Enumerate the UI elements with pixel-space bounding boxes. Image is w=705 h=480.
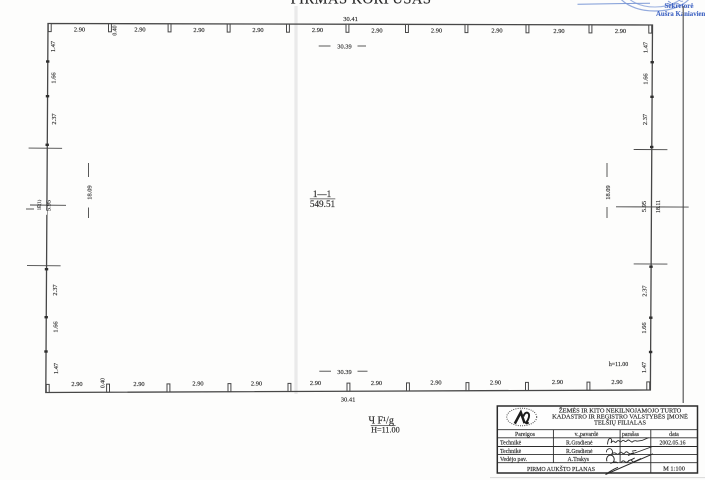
svg-text:2.90: 2.90 xyxy=(430,380,441,387)
svg-text:0.40: 0.40 xyxy=(112,25,118,35)
svg-text:v.,pavardė: v.,pavardė xyxy=(575,432,599,438)
svg-text:1.66: 1.66 xyxy=(641,322,648,333)
svg-text:30.41: 30.41 xyxy=(343,16,358,23)
svg-text:2.90: 2.90 xyxy=(491,28,502,35)
svg-text:1.47: 1.47 xyxy=(641,361,648,373)
svg-text:30.39: 30.39 xyxy=(337,43,351,50)
svg-text:h=11.00: h=11.00 xyxy=(609,362,628,368)
svg-text:1.47: 1.47 xyxy=(50,40,57,52)
svg-text:2.90: 2.90 xyxy=(611,379,622,386)
svg-text:2.90: 2.90 xyxy=(71,381,82,388)
svg-text:2.37: 2.37 xyxy=(641,285,648,297)
svg-text:Technikė: Technikė xyxy=(500,449,522,455)
svg-text:1.47: 1.47 xyxy=(53,362,60,374)
svg-text:1.66: 1.66 xyxy=(50,72,57,83)
svg-text:TELŠIŲ FILIALAS: TELŠIŲ FILIALAS xyxy=(594,418,646,426)
svg-text:2.90: 2.90 xyxy=(192,381,203,388)
svg-text:2.90: 2.90 xyxy=(490,379,501,386)
svg-text:PIRMAS KORPUSAS: PIRMAS KORPUSAS xyxy=(291,0,432,8)
svg-text:30.41: 30.41 xyxy=(341,396,356,403)
svg-text:1Ė(1): 1Ė(1) xyxy=(37,199,42,210)
svg-text:2.37: 2.37 xyxy=(51,113,58,125)
svg-text:30.39: 30.39 xyxy=(337,369,351,376)
svg-text:Vedėjo pav.: Vedėjo pav. xyxy=(500,457,528,463)
svg-text:2.37: 2.37 xyxy=(642,113,649,125)
svg-text:data: data xyxy=(669,432,679,438)
svg-text:18.09: 18.09 xyxy=(605,185,612,199)
svg-text:18.09: 18.09 xyxy=(87,185,94,199)
svg-text:18.11: 18.11 xyxy=(656,200,662,213)
svg-text:A.Trakys: A.Trakys xyxy=(568,457,590,463)
svg-text:2.90: 2.90 xyxy=(552,379,563,386)
svg-text:5.95: 5.95 xyxy=(641,201,648,212)
svg-text:2.90: 2.90 xyxy=(133,381,144,388)
svg-text:0.40: 0.40 xyxy=(100,378,106,388)
svg-text:2.90: 2.90 xyxy=(312,27,323,34)
svg-text:Technikė: Technikė xyxy=(500,441,522,447)
svg-text:Aušra Kaniavienė: Aušra Kaniavienė xyxy=(656,11,705,18)
svg-text:R.Gradienė: R.Gradienė xyxy=(566,449,593,455)
svg-text:H=11.00: H=11.00 xyxy=(371,426,400,435)
svg-text:Sekretorė: Sekretorė xyxy=(664,2,693,10)
svg-text:2.90: 2.90 xyxy=(553,28,564,35)
svg-text:2.90: 2.90 xyxy=(252,27,263,34)
svg-text:2.90: 2.90 xyxy=(74,27,85,34)
svg-text:1.66: 1.66 xyxy=(642,73,649,84)
svg-text:2.90: 2.90 xyxy=(134,27,145,34)
svg-text:1.66: 1.66 xyxy=(52,321,59,332)
svg-text:R.Gradienė: R.Gradienė xyxy=(566,441,593,447)
svg-text:1.47: 1.47 xyxy=(643,41,650,53)
svg-text:2.37: 2.37 xyxy=(52,284,59,296)
svg-text:Pareigos: Pareigos xyxy=(515,432,536,438)
svg-text:2.90: 2.90 xyxy=(251,380,262,387)
svg-text:2.90: 2.90 xyxy=(371,380,382,387)
svg-text:2002.05.16: 2002.05.16 xyxy=(659,440,685,446)
svg-text:2.90: 2.90 xyxy=(310,380,321,387)
svg-text:parašas: parašas xyxy=(622,432,640,438)
svg-text:2.90: 2.90 xyxy=(431,28,442,35)
svg-text:5.95: 5.95 xyxy=(46,200,53,211)
svg-text:1—1: 1—1 xyxy=(313,189,332,199)
svg-text:2.90: 2.90 xyxy=(193,27,204,34)
svg-text:PIRMO AUKŠTO PLANAS: PIRMO AUKŠTO PLANAS xyxy=(527,465,595,473)
svg-text:2.90: 2.90 xyxy=(371,27,382,34)
svg-text:M 1:100: M 1:100 xyxy=(663,466,685,473)
svg-text:2.90: 2.90 xyxy=(615,28,626,35)
svg-text:549.51: 549.51 xyxy=(310,199,336,209)
